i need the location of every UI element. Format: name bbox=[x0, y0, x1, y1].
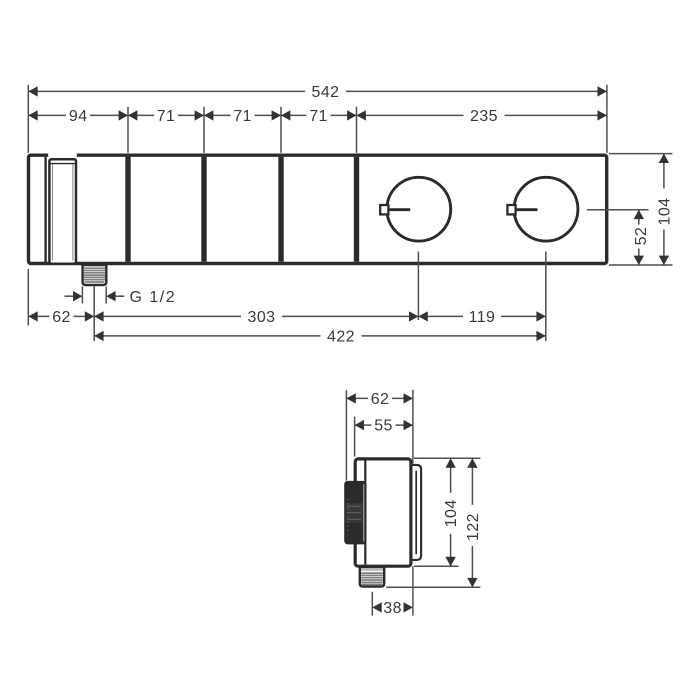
svg-text:52: 52 bbox=[633, 227, 650, 246]
svg-text:55: 55 bbox=[374, 418, 393, 435]
svg-text:62: 62 bbox=[371, 391, 390, 408]
svg-text:38: 38 bbox=[383, 600, 402, 617]
svg-text:542: 542 bbox=[312, 84, 340, 101]
svg-text:422: 422 bbox=[327, 328, 355, 345]
svg-text:104: 104 bbox=[443, 499, 460, 527]
svg-text:71: 71 bbox=[157, 108, 176, 125]
svg-text:71: 71 bbox=[309, 108, 328, 125]
svg-text:94: 94 bbox=[69, 108, 88, 125]
svg-text:122: 122 bbox=[465, 513, 482, 541]
svg-text:119: 119 bbox=[469, 309, 496, 326]
svg-text:104: 104 bbox=[656, 198, 673, 226]
svg-text:71: 71 bbox=[233, 108, 252, 125]
svg-text:G 1/2: G 1/2 bbox=[130, 289, 177, 306]
svg-text:235: 235 bbox=[470, 108, 498, 125]
svg-text:62: 62 bbox=[52, 309, 71, 326]
svg-text:303: 303 bbox=[248, 309, 276, 326]
